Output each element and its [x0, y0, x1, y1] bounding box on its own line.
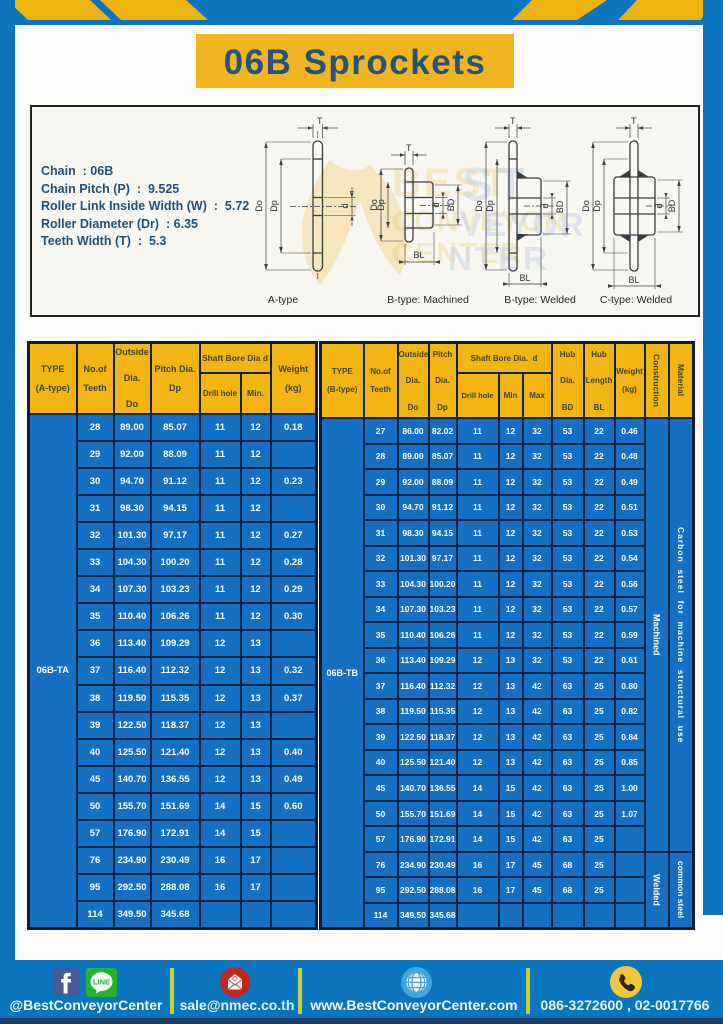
- svg-text:d: d: [654, 203, 664, 208]
- svg-text:B-type: Welded: B-type: Welded: [504, 294, 576, 306]
- svg-text:BD: BD: [667, 199, 677, 212]
- svg-text:T: T: [631, 116, 637, 126]
- svg-text:d: d: [431, 202, 441, 207]
- svg-text:BL: BL: [413, 250, 424, 260]
- svg-text:LINE: LINE: [93, 978, 110, 987]
- svg-text:BL: BL: [519, 273, 530, 283]
- svg-text:d: d: [540, 203, 550, 208]
- svg-text:T: T: [406, 143, 412, 153]
- svg-text:BD: BD: [555, 200, 565, 213]
- svg-text:A-type: A-type: [268, 294, 299, 306]
- svg-text:BD: BD: [446, 198, 456, 211]
- svg-text:Do: Do: [474, 200, 484, 212]
- svg-text:T: T: [317, 116, 323, 126]
- svg-text:C-type: Welded: C-type: Welded: [600, 294, 672, 306]
- svg-text:Do: Do: [581, 200, 591, 212]
- svg-text:NTER: NTER: [448, 240, 550, 277]
- svg-text:T: T: [510, 116, 516, 126]
- svg-text:Dp: Dp: [376, 199, 386, 211]
- svg-text:ST: ST: [462, 158, 529, 210]
- svg-text:Dp: Dp: [485, 200, 495, 212]
- svg-text:d: d: [340, 203, 350, 208]
- svg-text:BL: BL: [628, 275, 639, 285]
- svg-text:B-type: Machined: B-type: Machined: [387, 294, 469, 306]
- svg-text:Dp: Dp: [592, 200, 602, 212]
